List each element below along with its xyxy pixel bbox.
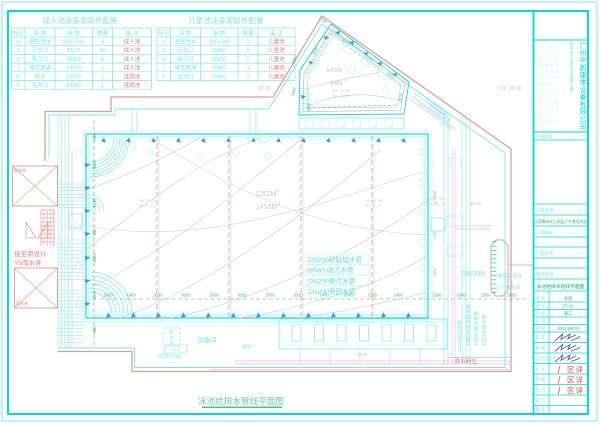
svg-text:2550: 2550	[92, 198, 97, 208]
svg-text:2700: 2700	[433, 231, 437, 239]
svg-text:DN50: DN50	[67, 57, 81, 63]
svg-text:Y: Y	[162, 74, 166, 80]
svg-text:UL 16.40: UL 16.40	[365, 203, 382, 208]
svg-text:广州中鹏康体设备有限公司: 广州中鹏康体设备有限公司	[580, 41, 587, 131]
svg-text:DN50: DN50	[212, 57, 226, 63]
svg-text:DN100溢流排水管: DN100溢流排水管	[465, 304, 472, 345]
svg-text:DN50 吸污水管: DN50 吸污水管	[473, 311, 480, 345]
svg-text:水施: 水施	[564, 295, 573, 302]
svg-text:1500: 1500	[432, 293, 442, 298]
svg-text:3030: 3030	[181, 293, 191, 298]
svg-text:3030: 3030	[209, 293, 219, 298]
svg-text:BL 17.75: BL 17.75	[139, 203, 156, 208]
svg-text:工程负责: 工程负责	[536, 250, 554, 257]
svg-text:成人池: 成人池	[124, 55, 141, 63]
svg-text:参 数: 参 数	[67, 29, 80, 37]
svg-text:1: 1	[101, 83, 104, 89]
svg-text:吸污口: 吸污口	[177, 55, 194, 63]
svg-text:区详: 区详	[567, 385, 584, 395]
svg-text:6: 6	[101, 57, 104, 63]
svg-text:DN200排污水管: DN200排污水管	[456, 319, 463, 352]
svg-text:成人池: 成人池	[124, 64, 141, 72]
svg-text:制 图: 制 图	[536, 376, 546, 383]
svg-text:2: 2	[246, 57, 249, 63]
svg-text:儿童池: 儿童池	[268, 64, 285, 72]
svg-text:成人池: 成人池	[124, 46, 141, 54]
svg-text:W.磁7.90: W.磁7.90	[428, 196, 444, 201]
svg-text:儿童池: 儿童池	[268, 46, 285, 54]
svg-text:备 注: 备 注	[270, 29, 283, 37]
svg-text:3000: 3000	[92, 291, 97, 301]
svg-text:底部泄水: 底部泄水	[174, 38, 197, 46]
svg-text:DN200: DN200	[461, 269, 484, 278]
svg-text:积水坑: 积水坑	[169, 329, 174, 347]
svg-text:校 对: 校 对	[536, 387, 546, 394]
svg-text:靠右利左: 靠右利左	[455, 357, 478, 365]
svg-text:DN75: DN75	[67, 48, 81, 54]
svg-text:D: D	[16, 74, 20, 80]
svg-text:X: X	[162, 57, 166, 63]
svg-text:DN200砂缸给水管: DN200砂缸给水管	[308, 255, 363, 264]
svg-text:标记: 标记	[158, 29, 170, 37]
svg-text:DN50: DN50	[212, 66, 226, 72]
svg-text:9: 9	[246, 48, 249, 54]
svg-text:φ4○: φ4○	[167, 360, 175, 365]
svg-text:设备间: 设备间	[197, 335, 217, 344]
svg-text:DN200给水管: DN200给水管	[481, 314, 488, 345]
svg-text:1: 1	[246, 74, 249, 80]
svg-text:P027: P027	[578, 209, 586, 213]
svg-text:雨水井: 雨水井	[16, 300, 28, 306]
svg-text:塑料泄水: 塑料泄水	[29, 38, 52, 46]
svg-text:1252M: 1252M	[255, 191, 277, 198]
svg-text:DN50: DN50	[212, 48, 226, 54]
svg-text:汉国椰绿化山涧蓝户外景观改造: 汉国椰绿化山涧蓝户外景观改造	[534, 219, 587, 224]
svg-text:DN80 吸污水管: DN80 吸污水管	[308, 266, 354, 275]
svg-text:DN200侧污水管: DN200侧污水管	[308, 276, 356, 285]
svg-text:H: H	[16, 40, 20, 46]
svg-text:连调池: 连调池	[124, 81, 141, 89]
svg-text:区详: 区详	[567, 374, 584, 384]
svg-text:GJS07: GJS07	[575, 252, 586, 256]
svg-text:KST 16: KST 16	[574, 231, 586, 235]
svg-text:审 核: 审 核	[536, 345, 546, 352]
svg-text:500×500: 500×500	[63, 40, 85, 46]
svg-text:区详: 区详	[567, 364, 584, 374]
svg-text:DN50: DN50	[67, 74, 81, 80]
svg-text:审 订: 审 订	[536, 397, 546, 404]
svg-text:3000: 3000	[92, 160, 97, 170]
svg-text:Y5雨水井: Y5雨水井	[14, 258, 42, 267]
svg-text:300×300: 300×300	[208, 40, 230, 46]
svg-text:1: 1	[246, 66, 249, 72]
svg-text:600: 600	[92, 326, 97, 334]
svg-text:18.00: 18.00	[470, 201, 482, 206]
svg-text:DN200侧回水管: DN200侧回水管	[308, 287, 356, 296]
svg-text:连调池: 连调池	[124, 72, 141, 80]
svg-text:设 计: 设 计	[536, 366, 546, 373]
svg-text:X: X	[16, 57, 20, 63]
svg-text:参 数: 参 数	[213, 29, 226, 37]
svg-text:TW 18.00: TW 18.00	[498, 86, 522, 92]
svg-text:600: 600	[92, 133, 97, 141]
svg-text:1400: 1400	[126, 293, 136, 298]
svg-text:泳池给排水管线平面图: 泳池给排水管线平面图	[198, 395, 284, 406]
svg-text:T01: T01	[580, 273, 586, 277]
svg-text:强性直通: 强性直通	[29, 64, 52, 72]
svg-text:3030: 3030	[153, 293, 163, 298]
svg-text:接至原设计: 接至原设计	[497, 273, 522, 280]
svg-text:泳池给排水管线平面图: 泳池给排水管线平面图	[537, 283, 585, 290]
svg-text:2: 2	[246, 40, 249, 46]
svg-text:2013-09-30: 2013-09-30	[557, 326, 580, 331]
svg-text:1650: 1650	[103, 293, 113, 298]
svg-text:沉淀泵水机组: 沉淀泵水机组	[157, 353, 181, 359]
svg-text:比 例: 比 例	[536, 318, 546, 325]
svg-text:40: 40	[99, 48, 105, 54]
svg-text:儿童池: 儿童池	[268, 38, 285, 46]
svg-text:1: 1	[101, 74, 104, 80]
svg-text:ZP-01: ZP-01	[562, 304, 574, 309]
svg-text:工程名称: 工程名称	[536, 207, 554, 214]
svg-text:#F1L: #F1L	[172, 348, 180, 352]
svg-text:数量: 数量	[97, 29, 109, 37]
svg-text:儿童池: 儿童池	[268, 55, 285, 63]
svg-text:Y: Y	[16, 83, 20, 89]
svg-text:名 称: 名 称	[179, 29, 192, 37]
svg-text:DN80: DN80	[67, 83, 81, 89]
svg-text:1400: 1400	[393, 293, 403, 298]
svg-text:溢流口: 溢流口	[177, 72, 194, 80]
svg-text:3500: 3500	[92, 253, 97, 263]
svg-text:3030: 3030	[293, 293, 303, 298]
svg-text:18.00: 18.00	[356, 352, 368, 357]
svg-text:阶 段: 阶 段	[536, 310, 546, 317]
svg-text:儿童池泳身安装件配置: 儿童池泳身安装件配置	[189, 15, 264, 25]
svg-text:1944: 1944	[433, 268, 437, 276]
svg-text:KT-TJ28: KT-TJ28	[572, 135, 586, 139]
svg-text:标记: 标记	[13, 29, 25, 37]
svg-text:△Y 雨水井: △Y 雨水井	[497, 284, 520, 291]
svg-text:名 称: 名 称	[34, 29, 47, 37]
svg-text:图纸名称: 图纸名称	[536, 271, 554, 278]
svg-text:泛水口: 泛水口	[177, 46, 194, 54]
svg-text:3030: 3030	[265, 293, 275, 298]
svg-text:1900: 1900	[456, 293, 466, 298]
svg-text:溢流口: 溢流口	[32, 81, 49, 89]
svg-text:3030: 3030	[237, 293, 247, 298]
svg-text:雨水井: 雨水井	[14, 167, 26, 173]
svg-text:7600: 7600	[306, 102, 311, 112]
svg-text:泛水口: 泛水口	[32, 46, 49, 54]
svg-text:143M: 143M	[326, 67, 342, 74]
svg-text:18.00: 18.00	[258, 86, 271, 92]
svg-text:施工: 施工	[564, 310, 573, 317]
svg-text:图 别: 图 别	[536, 295, 546, 302]
svg-text:吸污口: 吸污口	[32, 55, 49, 63]
svg-text:2500: 2500	[481, 293, 491, 298]
svg-text:备 注: 备 注	[536, 406, 546, 413]
svg-text:成人池: 成人池	[124, 38, 141, 46]
svg-text:1453M: 1453M	[256, 204, 278, 211]
svg-text:DN50: DN50	[67, 66, 81, 72]
svg-text:设计总负责: 设计总负责	[536, 355, 558, 362]
svg-text:节能审查: 节能审查	[536, 133, 554, 140]
svg-text:维修门: 维修门	[242, 343, 254, 349]
svg-text:审 定: 审 定	[536, 334, 546, 341]
svg-text:数量: 数量	[242, 29, 254, 37]
svg-text:成人池泳身安装件配置: 成人池泳身安装件配置	[43, 15, 118, 25]
svg-text:4: 4	[101, 40, 104, 46]
svg-text:DN80: DN80	[212, 74, 226, 80]
svg-text:排水: 排水	[34, 72, 46, 80]
svg-text:强性直通: 强性直通	[174, 64, 197, 72]
svg-text:BL.磁7.75: BL.磁7.75	[428, 201, 445, 206]
svg-text:接至原设计-: 接至原设计-	[14, 249, 49, 258]
svg-text:1400: 1400	[506, 293, 516, 298]
svg-text:工程编号: 工程编号	[536, 229, 554, 236]
svg-text:950: 950	[92, 228, 97, 236]
svg-text:1: 1	[101, 66, 104, 72]
svg-text:备 注: 备 注	[126, 29, 139, 37]
svg-text:h: h	[162, 40, 165, 46]
